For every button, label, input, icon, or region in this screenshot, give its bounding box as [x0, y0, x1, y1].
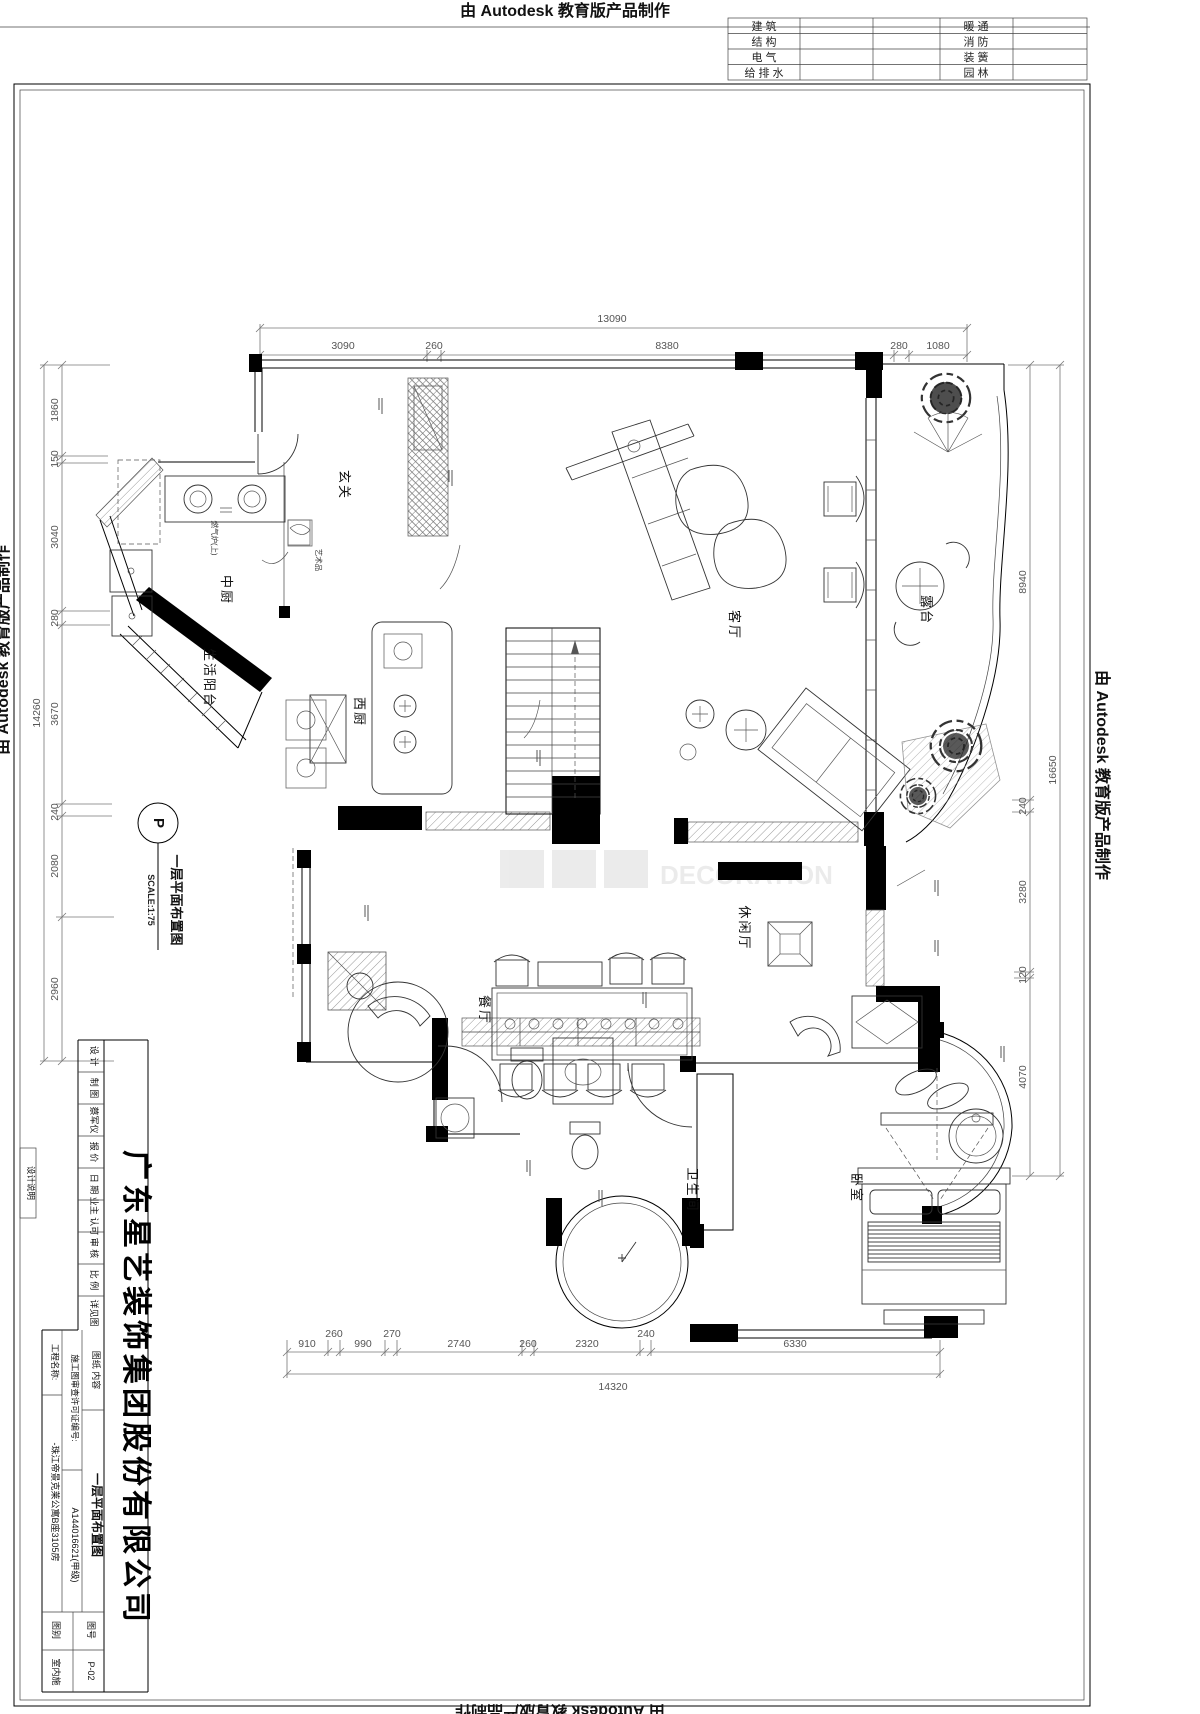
note-stove: 燃气炉(上)	[210, 521, 220, 556]
marker-letter: P	[150, 818, 167, 828]
dim-right-4: 120	[1017, 966, 1029, 984]
room-label-dining: 餐厅	[477, 995, 492, 1025]
dim-left-8: 2960	[49, 977, 61, 1001]
dim-bot-7: 2320	[575, 1338, 599, 1350]
tb-content-value: 一层平面布置图	[90, 1473, 105, 1557]
tb-date: 日 期	[89, 1174, 99, 1195]
discipline-plumb: 给 排 水	[744, 66, 783, 80]
marker-scale: SCALE:1:75	[146, 874, 156, 926]
discipline-hvac: 暖 通	[963, 20, 988, 33]
stool	[586, 1064, 622, 1097]
tb-quote: 报 价	[89, 1142, 100, 1163]
tb-design: 设 计	[89, 1046, 100, 1067]
dim-bot-1: 910	[298, 1338, 316, 1350]
room-label-service-balcony: 生活阳台	[202, 648, 217, 708]
room-label-terrace: 露台	[919, 595, 934, 625]
dim-left-7: 2080	[49, 854, 61, 878]
discipline-fire: 消 防	[963, 35, 988, 49]
tb-project-label: 工程名称:	[50, 1344, 60, 1380]
dim-bot-6: 260	[519, 1338, 537, 1350]
room-label-bedroom: 卧室	[849, 1173, 864, 1203]
dim-bot-5: 2740	[447, 1338, 471, 1350]
room-label-entry: 玄关	[337, 470, 352, 500]
discipline-decor: 装 簧	[963, 50, 988, 64]
dim-bot-9: 6330	[783, 1338, 807, 1350]
tb-category-value: 室内施	[51, 1658, 62, 1685]
armchair	[824, 476, 864, 522]
dim-bot-total: 14320	[598, 1381, 627, 1393]
tb-ratio: 比 例	[89, 1270, 100, 1291]
tb-category-label: 图别	[51, 1621, 61, 1639]
sheet-frame	[0, 27, 1090, 1706]
stool	[650, 953, 686, 984]
marker-title: 一层平面布置图	[169, 854, 184, 945]
dim-left-4: 280	[49, 609, 61, 627]
cad-sheet: 由 Autodesk 教育版产品制作 由 Autodesk 教育版产品制作 由 …	[0, 0, 1200, 1714]
dim-top-5: 1080	[926, 340, 950, 352]
dim-top-4: 280	[890, 340, 908, 352]
tb-content-label: 图纸 内容	[91, 1351, 102, 1390]
watermark-bottom: 由 Autodesk 教育版产品制作	[455, 1702, 665, 1714]
watermark-top: 由 Autodesk 教育版产品制作	[460, 1, 670, 20]
tb-project-value: -珠江帝景克莱公寓B座3105房	[50, 1442, 61, 1561]
floor-plan-canvas: 由 Autodesk 教育版产品制作 由 Autodesk 教育版产品制作 由 …	[0, 0, 1200, 1714]
title-block: 设 计 制 图 蔡军仪 报 价 日 期 业主 认可 审 核 比 例 详见图 工程…	[20, 1040, 153, 1692]
stool	[494, 955, 530, 986]
watermark-right: 由 Autodesk 教育版产品制作	[1093, 670, 1112, 880]
dim-top-2: 260	[425, 340, 443, 352]
tb-owner-approve: 业主 认可	[89, 1197, 100, 1236]
dim-left-1: 1860	[49, 398, 61, 422]
tb-company: 广东星艺装饰集团股份有限公司	[119, 1150, 153, 1626]
tb-no-label: 图号	[86, 1621, 96, 1639]
terrace	[880, 364, 1008, 842]
discipline-garden: 园 林	[963, 66, 988, 80]
room-label-chinese-kitchen: 中厨	[219, 575, 234, 605]
discipline-elec: 电 气	[751, 50, 776, 64]
tb-permit-value: A144016621(甲级)	[70, 1507, 81, 1582]
dim-chain-left: 1860 150 3040 280 3670 240 2080 2960 142…	[31, 361, 114, 1065]
art-display	[262, 520, 310, 564]
tb-see-drawing: 详见图	[89, 1299, 100, 1326]
note-art: 艺术品	[314, 549, 324, 572]
bathroom-fixtures	[436, 1038, 613, 1169]
dim-chain-right: 8940 240 3280 120 4070 16650	[1008, 361, 1064, 1180]
island-counter	[286, 622, 452, 794]
discipline-struct: 结 构	[751, 35, 776, 49]
dim-left-total: 14260	[31, 698, 43, 727]
dim-left-2: 150	[49, 450, 61, 468]
dim-right-total: 16650	[1047, 755, 1059, 784]
stool	[630, 1064, 666, 1097]
room-label-bathroom: 卫生间	[685, 1167, 700, 1212]
dim-top-1: 3090	[331, 340, 355, 352]
tb-no-value: P-02	[86, 1661, 96, 1680]
dim-bot-4: 270	[383, 1328, 401, 1340]
dim-top-total: 13090	[597, 313, 626, 325]
dim-left-3: 3040	[49, 525, 61, 549]
discipline-arch: 建 筑	[751, 19, 776, 33]
stool	[498, 1064, 534, 1097]
bedroom-furniture	[858, 1068, 1010, 1324]
room-label-lounge: 休闲厅	[737, 905, 752, 950]
fan-paving	[914, 412, 982, 452]
tb-draft: 制 图	[89, 1078, 100, 1099]
dim-right-5: 4070	[1017, 1065, 1029, 1089]
tb-permit-label: 施工图审查许可证编号:	[70, 1354, 80, 1441]
stool	[608, 953, 644, 984]
tb-drafter: 蔡军仪	[89, 1106, 100, 1133]
dim-left-5: 3670	[49, 702, 61, 726]
plan-title-marker: P 一层平面布置图 SCALE:1:75	[138, 803, 184, 950]
entry-cabinets	[288, 378, 448, 546]
stove	[165, 476, 285, 522]
watermark-left: 由 Autodesk 教育版产品制作	[0, 545, 12, 755]
dim-left-6: 240	[49, 803, 61, 821]
dim-right-1: 8940	[1017, 570, 1029, 594]
sofa-angled	[758, 688, 910, 831]
tb-audit: 审 核	[89, 1238, 100, 1259]
dim-bot-2: 260	[325, 1328, 343, 1340]
room-label-western-kitchen: 西厨	[352, 697, 367, 727]
stool	[542, 1064, 578, 1097]
walls	[96, 352, 1012, 1342]
dim-bot-3: 990	[354, 1338, 372, 1350]
dim-right-2: 240	[1017, 797, 1029, 815]
armchair	[824, 562, 864, 608]
dim-bot-8: 240	[637, 1328, 655, 1340]
dim-top-3: 8380	[655, 340, 679, 352]
dim-right-3: 3280	[1017, 880, 1029, 904]
room-label-living: 客厅	[727, 610, 742, 640]
tb-design-note: 设计说明	[26, 1166, 36, 1200]
fridge	[310, 695, 346, 763]
